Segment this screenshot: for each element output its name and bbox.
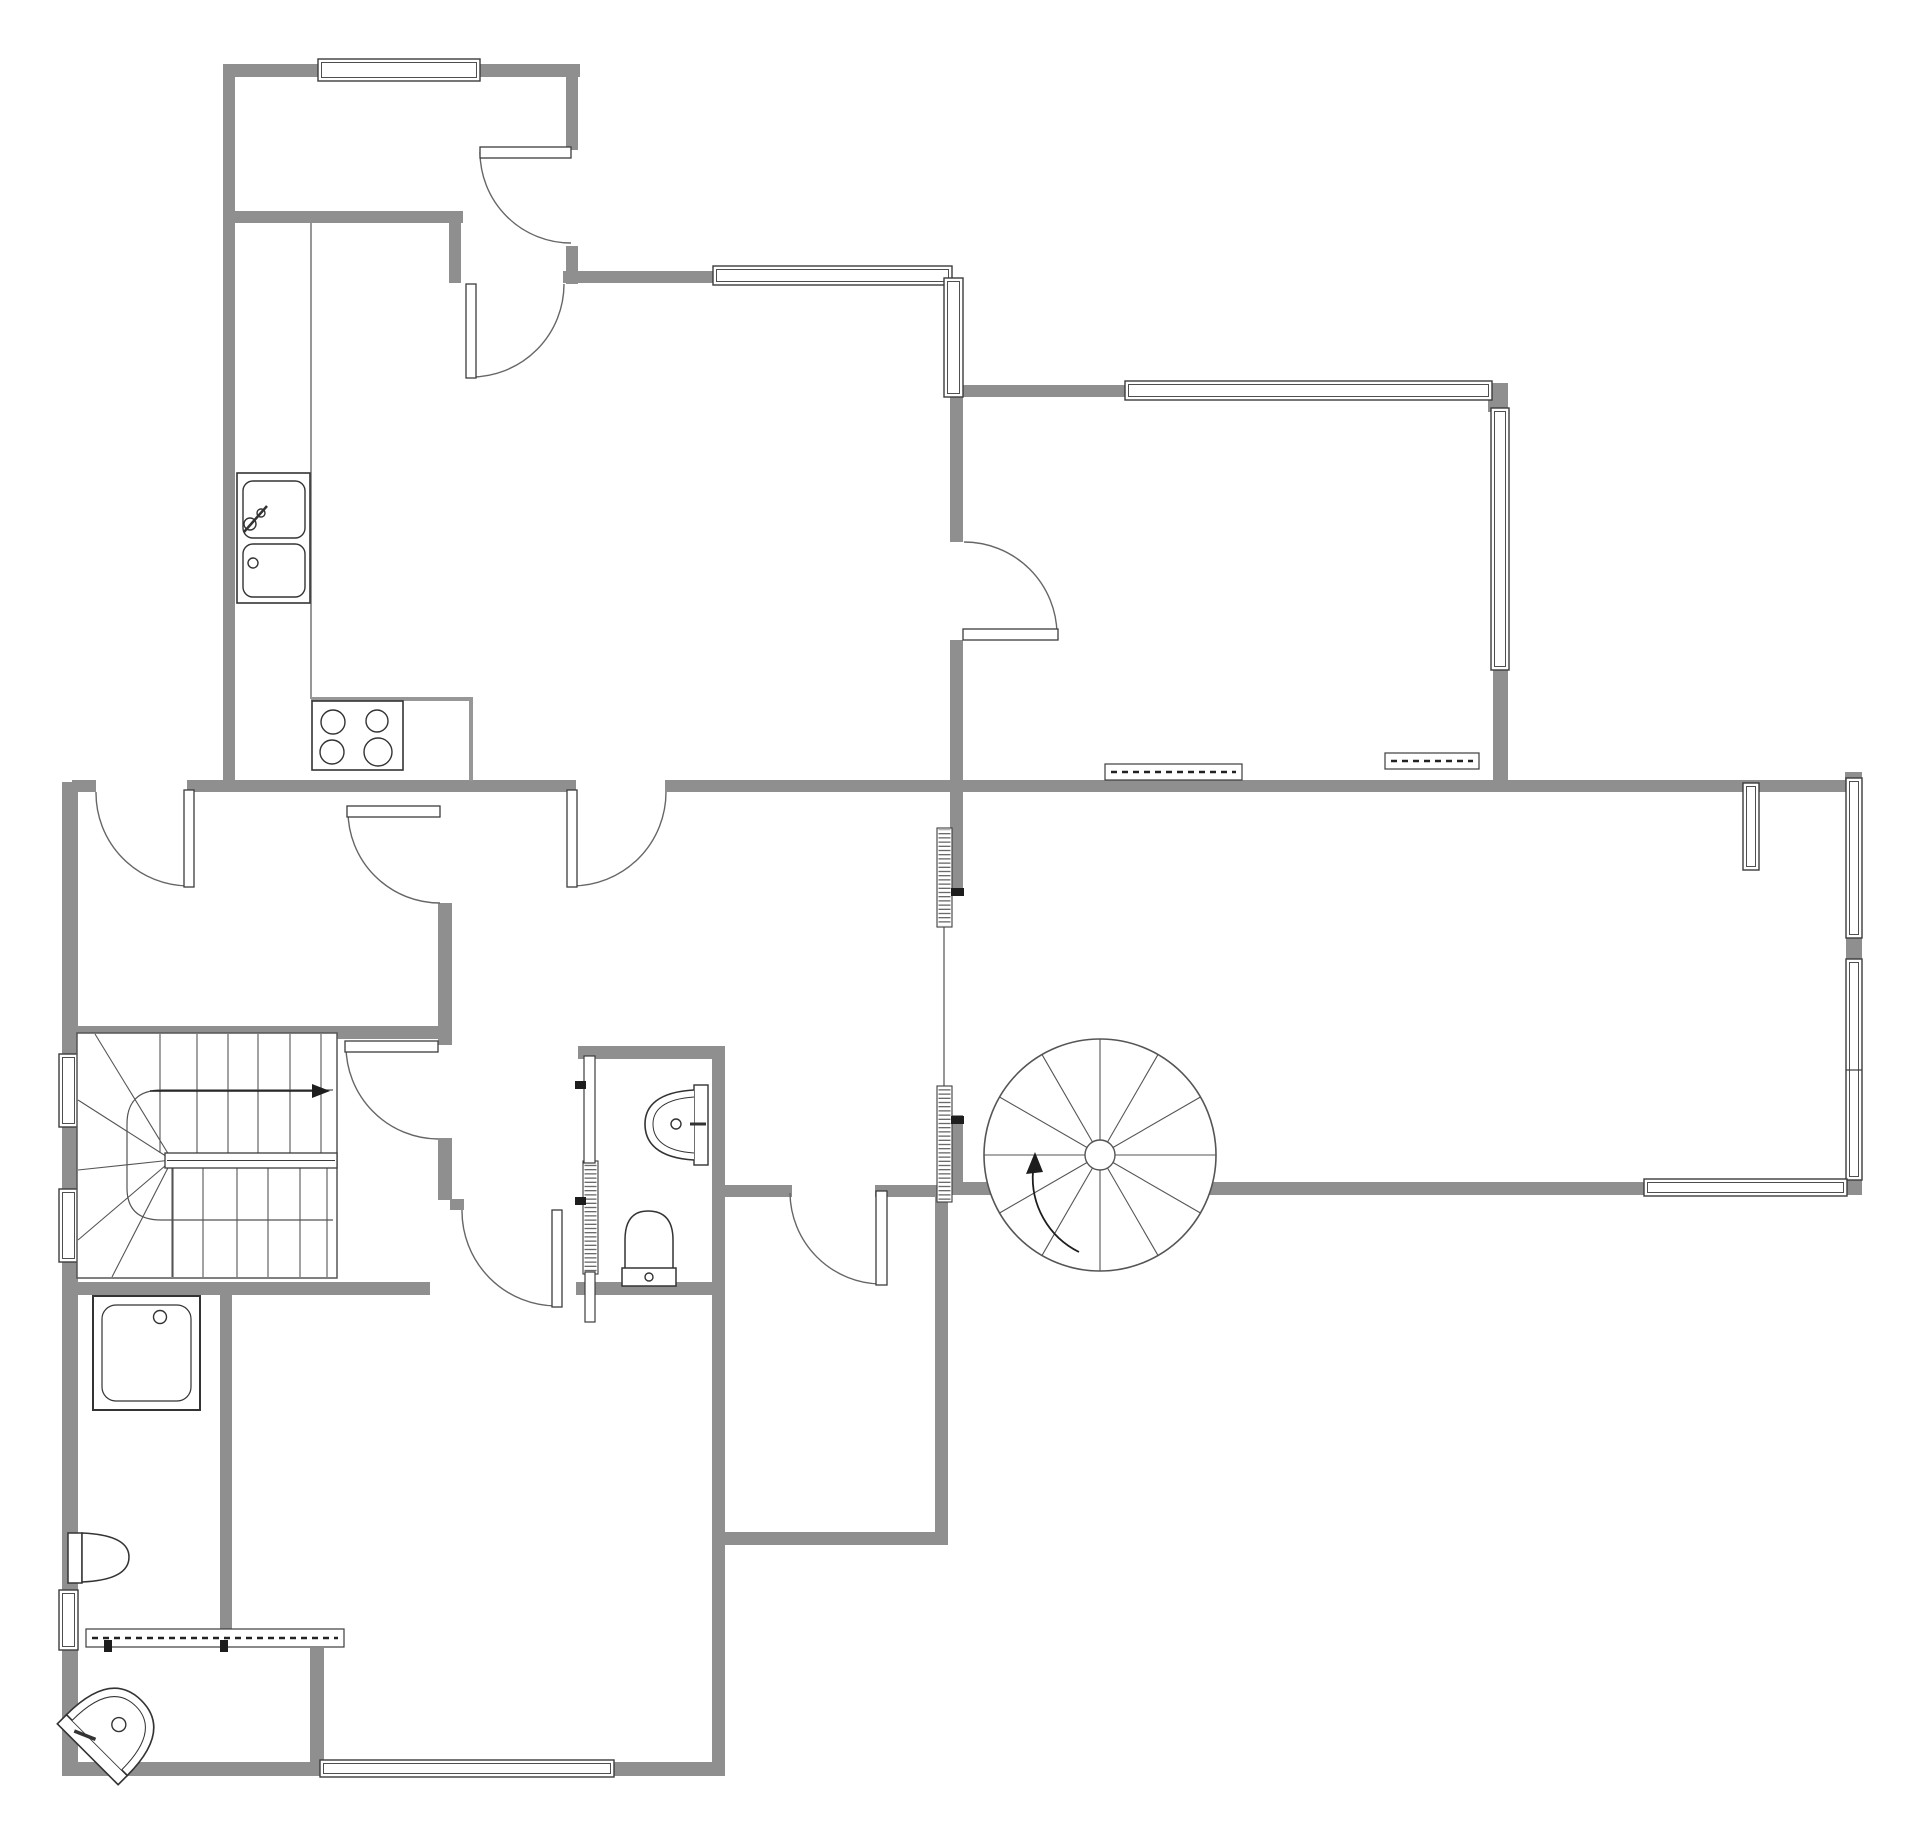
door-corridor-stairroom <box>345 1041 438 1139</box>
floor-plan-page <box>0 0 1920 1840</box>
wall-entry-east-b <box>566 246 578 284</box>
bath-partition-bottom <box>585 1272 595 1322</box>
door-hall-exterior <box>96 790 194 887</box>
fixture-wc-toilet <box>68 1533 129 1583</box>
window-west-1 <box>59 1054 78 1127</box>
wall-corridor-stub <box>450 1199 464 1210</box>
door-hall-exterior-swing <box>96 792 189 886</box>
door-entry-exterior-leaf <box>480 147 571 158</box>
door-dining-midroom-swing <box>790 1193 881 1284</box>
door-hall-corridor-leaf <box>347 806 440 817</box>
window-bottom <box>320 1760 614 1777</box>
door-dining-midroom <box>790 1191 887 1285</box>
fixture-bath-sink-part-3 <box>671 1119 681 1129</box>
fixture-wc-toilet-part-1 <box>82 1533 129 1582</box>
door-corridor-bottomroom <box>462 1210 562 1307</box>
staircase-spiral <box>984 1039 1216 1271</box>
tick-sinkroom-2 <box>220 1640 228 1652</box>
window-topright-north <box>1125 381 1492 400</box>
wall-west-a <box>62 782 78 1058</box>
door-corridor-stairroom-swing <box>346 1046 438 1139</box>
wall-strip-south-a <box>718 1185 792 1197</box>
door-kitchen-dining <box>567 790 666 887</box>
fixture-bath-toilet-part-0 <box>625 1211 673 1270</box>
wall-topright-east <box>1493 668 1508 792</box>
door-corridor-bottomroom-swing <box>462 1210 557 1306</box>
fixture-bath-toilet <box>622 1211 676 1286</box>
wall-topright-north <box>947 385 1127 397</box>
window-topright-east <box>1491 408 1509 670</box>
door-corridor-stairroom-leaf <box>345 1041 438 1052</box>
door-kitchen-topright-swing <box>964 542 1057 634</box>
fixture-stove-part-3 <box>320 740 344 764</box>
glazed-panel-bigroom-1-hatch <box>939 830 951 926</box>
window-kitchen-north <box>713 266 952 285</box>
wall-stair-south <box>62 1282 430 1295</box>
wall-bath-north <box>578 1046 725 1059</box>
wall-bottom-east <box>608 1762 724 1776</box>
wall-hall-east-b <box>438 1138 452 1200</box>
staircase-straight <box>77 1033 337 1278</box>
wall-kitchen-east-a <box>950 395 963 542</box>
wall-hall-east-a <box>438 903 452 1045</box>
door-dining-midroom-leaf <box>876 1191 887 1285</box>
fixture-shower-part-2 <box>154 1311 167 1324</box>
floor-plan-canvas <box>0 0 1920 1840</box>
fixture-bath-toilet-part-2 <box>645 1273 653 1281</box>
door-entry-kitchen <box>466 284 564 378</box>
door-entry-exterior <box>480 147 571 243</box>
windows-layer <box>59 59 1862 1777</box>
fixture-wc-toilet-part-0 <box>68 1533 82 1583</box>
wall-entry-south <box>223 211 463 223</box>
fixture-kitchen-sink-part-2 <box>243 544 305 597</box>
door-kitchen-topright-leaf <box>963 629 1058 640</box>
window-bigroom-radiator <box>1743 783 1759 870</box>
door-corridor-bottomroom-leaf <box>552 1210 562 1307</box>
tick-bath-1 <box>575 1081 586 1089</box>
door-hall-corridor <box>347 806 440 903</box>
wall-sinkroom-east <box>310 1648 324 1776</box>
fixture-shower-part-1 <box>102 1305 191 1401</box>
window-west-2 <box>59 1189 78 1262</box>
wall-entry-corner <box>449 211 461 283</box>
wall-wc-east <box>220 1288 232 1630</box>
door-kitchen-topright <box>963 542 1058 640</box>
wall-rooms-divider <box>712 1046 725 1776</box>
fixture-stove-part-2 <box>366 710 388 732</box>
wall-mid-east <box>665 780 1856 792</box>
fixture-stove <box>312 701 403 770</box>
fixture-kitchen-sink <box>237 473 310 603</box>
thin-lines-layer <box>311 223 944 1087</box>
wall-kitchen-north <box>563 271 718 283</box>
fixture-bath-sink <box>645 1085 708 1165</box>
wall-kitchen-west <box>223 64 235 792</box>
wall-midroom-south <box>712 1532 948 1545</box>
radiator-topright-2 <box>1385 753 1479 769</box>
door-entry-kitchen-leaf <box>466 284 476 378</box>
door-kitchen-dining-swing <box>572 792 666 886</box>
window-bigroom-south <box>1644 1179 1847 1196</box>
fixture-shower <box>93 1296 200 1410</box>
tick-bath-2 <box>575 1197 586 1205</box>
fixture-stove-part-1 <box>321 710 345 734</box>
door-hall-exterior-leaf <box>184 790 194 887</box>
spiral-hub <box>1085 1140 1115 1170</box>
door-hall-corridor-swing <box>348 811 440 903</box>
fixture-kitchen-sink-part-6 <box>248 558 258 568</box>
window-bigroom-east-1 <box>1846 778 1862 938</box>
wall-entry-east-a <box>566 64 578 150</box>
tick-bigroom-1 <box>951 888 964 896</box>
window-kitchen-east <box>944 278 963 397</box>
glazed-panel-bigroom-2-hatch <box>939 1088 951 1201</box>
wall-mid-main <box>187 780 576 792</box>
tick-sinkroom-1 <box>104 1640 112 1652</box>
wall-west-b <box>62 1123 78 1193</box>
window-west-3 <box>59 1590 78 1650</box>
glazed-panel-bath-hatch <box>585 1163 597 1273</box>
door-entry-exterior-swing <box>480 152 571 243</box>
wall-midroom-east <box>935 1193 948 1545</box>
fixture-stove-part-4 <box>364 738 392 766</box>
tick-bigroom-2 <box>951 1116 964 1124</box>
bath-partition-top <box>584 1056 595 1163</box>
door-entry-kitchen-swing <box>471 284 564 377</box>
door-kitchen-dining-leaf <box>567 790 577 887</box>
